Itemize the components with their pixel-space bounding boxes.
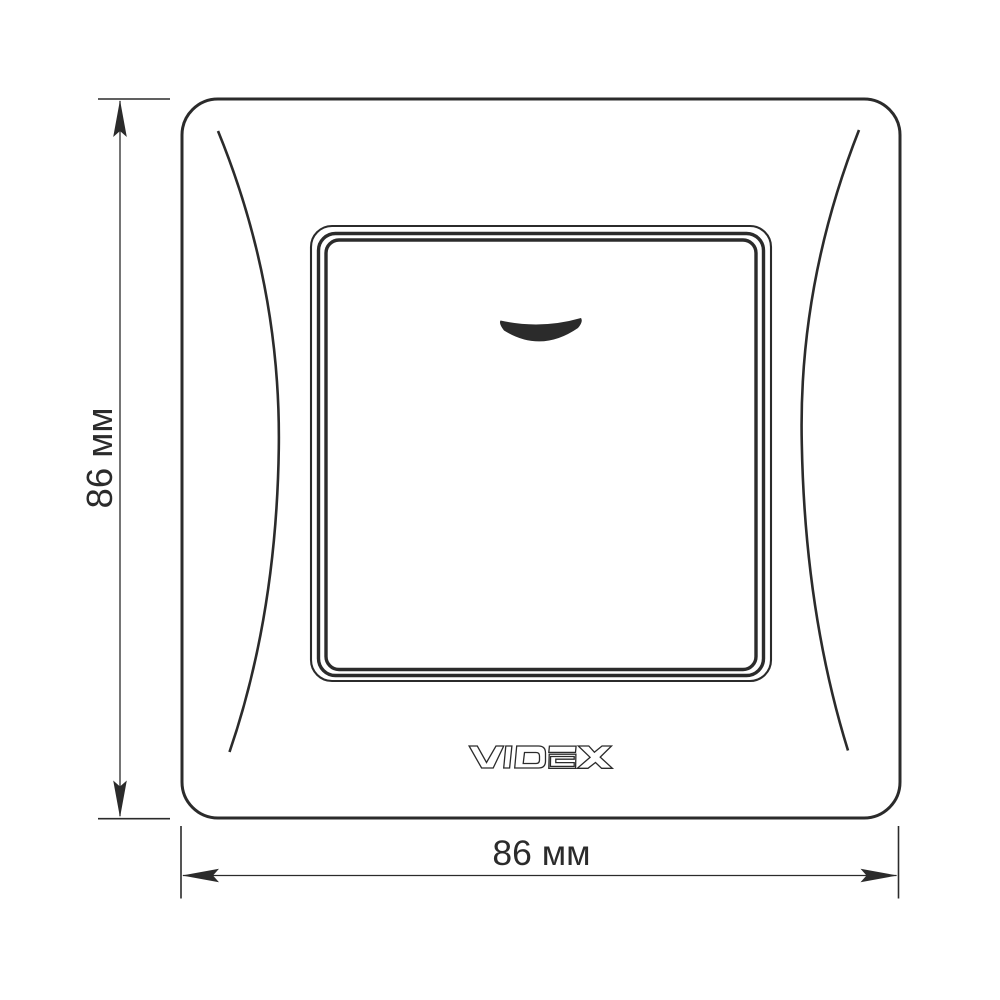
svg-text:86 мм: 86 мм [79, 408, 120, 509]
svg-text:86 мм: 86 мм [492, 833, 590, 873]
